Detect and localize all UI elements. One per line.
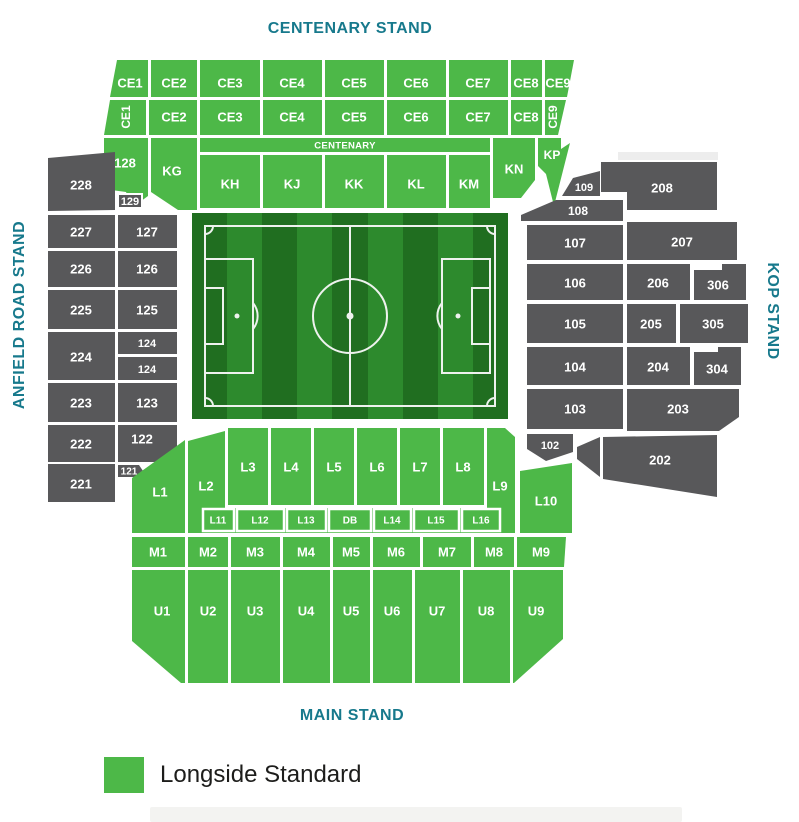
section-CE1-upper-label: CE1 [117, 75, 142, 90]
section-U1-label: U1 [154, 603, 171, 618]
section-123-label: 123 [136, 395, 158, 410]
section-109-label: 109 [575, 182, 593, 194]
section-128-label: 128 [114, 155, 136, 170]
kop-stand-label: KOP STAND [764, 262, 781, 359]
section-CE6-upper-label: CE6 [403, 75, 428, 90]
centenary-stand-label: CENTENARY STAND [268, 20, 433, 37]
section-M2-label: M2 [199, 544, 217, 559]
section-CE7-upper-label: CE7 [465, 75, 490, 90]
section-L6-label: L6 [369, 459, 384, 474]
pitch [192, 213, 508, 419]
section-206-label: 206 [647, 275, 669, 290]
section-M3-label: M3 [246, 544, 264, 559]
section-L2-label: L2 [198, 478, 213, 493]
anfield-road-stand-label: ANFIELD ROAD STAND [11, 221, 28, 409]
stadium-map-svg: CENTENARY STAND ANFIELD ROAD STAND KOP S… [0, 0, 799, 822]
section-105-label: 105 [564, 316, 586, 331]
section-KM-label: KM [459, 176, 479, 191]
section-202-label: 202 [649, 452, 671, 467]
section-225-label: 225 [70, 302, 92, 317]
section-U6-label: U6 [384, 603, 401, 618]
section-U9-label: U9 [528, 603, 545, 618]
section-L1-label: L1 [152, 484, 167, 499]
kop-stand: 109 208 108 107 207 106 206 306 105 205 … [521, 152, 748, 497]
section-L9-label: L9 [492, 478, 507, 493]
section-CE4-upper-label: CE4 [279, 75, 305, 90]
section-CE9-lower-label: CE9 [546, 105, 560, 129]
section-U5[interactable] [333, 570, 370, 683]
section-ghost-sliver [618, 152, 718, 160]
section-124-lower-label: 124 [138, 364, 157, 376]
section-KJ-label: KJ [284, 176, 301, 191]
section-CE2-upper-label: CE2 [161, 75, 186, 90]
section-M6-label: M6 [387, 544, 405, 559]
section-M1-label: M1 [149, 544, 167, 559]
section-227-label: 227 [70, 224, 92, 239]
section-M7-label: M7 [438, 544, 456, 559]
section-207-label: 207 [671, 234, 693, 249]
section-L13-label: L13 [297, 516, 315, 527]
section-M5-label: M5 [342, 544, 360, 559]
section-U8-label: U8 [478, 603, 495, 618]
section-CE8-upper-label: CE8 [513, 75, 538, 90]
section-U2[interactable] [188, 570, 228, 683]
legend-label: Longside Standard [160, 761, 362, 789]
section-125-label: 125 [136, 302, 158, 317]
section-222-label: 222 [70, 436, 92, 451]
section-122-label: 122 [131, 431, 153, 446]
section-KH-label: KH [221, 176, 240, 191]
section-126-label: 126 [136, 261, 158, 276]
section-L5-label: L5 [326, 459, 341, 474]
section-L14-label: L14 [383, 516, 401, 527]
section-U8[interactable] [463, 570, 510, 683]
section-CE4-lower-label: CE4 [279, 109, 305, 124]
section-106-label: 106 [564, 275, 586, 290]
section-L11-label: L11 [210, 516, 227, 527]
section-228-label: 228 [70, 177, 92, 192]
section-CE3-upper-label: CE3 [217, 75, 242, 90]
section-CE7-lower-label: CE7 [465, 109, 490, 124]
section-205-label: 205 [640, 316, 662, 331]
section-104-label: 104 [564, 359, 586, 374]
section-129-label: 129 [121, 196, 139, 208]
section-L3-label: L3 [240, 459, 255, 474]
section-221-label: 221 [70, 476, 92, 491]
section-KG-label: KG [162, 163, 182, 178]
section-U5-label: U5 [343, 603, 360, 618]
section-KL-label: KL [407, 176, 424, 191]
section-U7[interactable] [415, 570, 460, 683]
section-305-label: 305 [702, 316, 724, 331]
section-U4[interactable] [283, 570, 330, 683]
section-124-upper-label: 124 [138, 338, 157, 350]
section-226-label: 226 [70, 261, 92, 276]
legend-swatch-longside-standard [104, 757, 144, 793]
section-L16-label: L16 [472, 516, 490, 527]
section-108-label: 108 [568, 204, 588, 218]
section-CE1-lower-label: CE1 [119, 105, 133, 129]
section-102-label: 102 [541, 440, 559, 452]
section-CE8-lower-label: CE8 [513, 109, 538, 124]
section-U1[interactable] [132, 570, 185, 683]
section-kop-corner-wedge[interactable] [577, 437, 600, 477]
section-L10-label: L10 [535, 493, 557, 508]
section-U4-label: U4 [298, 603, 315, 618]
section-203-label: 203 [667, 401, 689, 416]
section-L8-label: L8 [455, 459, 470, 474]
section-304-label: 304 [706, 361, 728, 376]
section-M8-label: M8 [485, 544, 503, 559]
section-U9[interactable] [513, 570, 563, 683]
stadium-seat-map: CENTENARY STAND ANFIELD ROAD STAND KOP S… [0, 0, 799, 822]
section-L4-label: L4 [283, 459, 299, 474]
section-M4-label: M4 [297, 544, 316, 559]
section-127-label: 127 [136, 224, 158, 239]
section-204-label: 204 [647, 359, 669, 374]
section-U2-label: U2 [200, 603, 217, 618]
section-208-label: 208 [651, 180, 673, 195]
section-L12-label: L12 [251, 516, 269, 527]
section-107-label: 107 [564, 235, 586, 250]
legend: Longside Standard [104, 757, 362, 793]
section-223-label: 223 [70, 395, 92, 410]
section-U7-label: U7 [429, 603, 446, 618]
section-L15-label: L15 [427, 516, 445, 527]
section-103-label: 103 [564, 401, 586, 416]
section-M9-label: M9 [532, 544, 550, 559]
section-DB-label: DB [343, 516, 357, 527]
centenary-stand: CE1 CE2 CE3 CE4 CE5 CE6 CE7 CE8 CE9 CE1 … [104, 60, 574, 210]
section-KP-label: KP [544, 148, 561, 162]
anfield-road-stand: 228 129 227 127 226 126 225 125 224 124 … [48, 152, 177, 502]
section-centenary-strip-label: CENTENARY [314, 141, 376, 152]
section-CE5-lower-label: CE5 [341, 109, 366, 124]
section-CE3-lower-label: CE3 [217, 109, 242, 124]
section-224-label: 224 [70, 349, 92, 364]
section-CE5-upper-label: CE5 [341, 75, 366, 90]
section-U3-label: U3 [247, 603, 264, 618]
section-U6[interactable] [373, 570, 412, 683]
main-stand: L1 L2 L3 L4 L5 L6 L7 L8 L9 L10 L11 L12 L… [132, 428, 572, 683]
section-CE2-lower-label: CE2 [161, 109, 186, 124]
ghost-bottom-strip [150, 807, 682, 822]
main-stand-label: MAIN STAND [300, 707, 404, 724]
section-U3[interactable] [231, 570, 280, 683]
section-CE6-lower-label: CE6 [403, 109, 428, 124]
section-CE9-upper-label: CE9 [545, 75, 570, 90]
section-KK-label: KK [345, 176, 364, 191]
section-KN-label: KN [505, 161, 524, 176]
section-306-label: 306 [707, 277, 729, 292]
section-L7-label: L7 [412, 459, 427, 474]
